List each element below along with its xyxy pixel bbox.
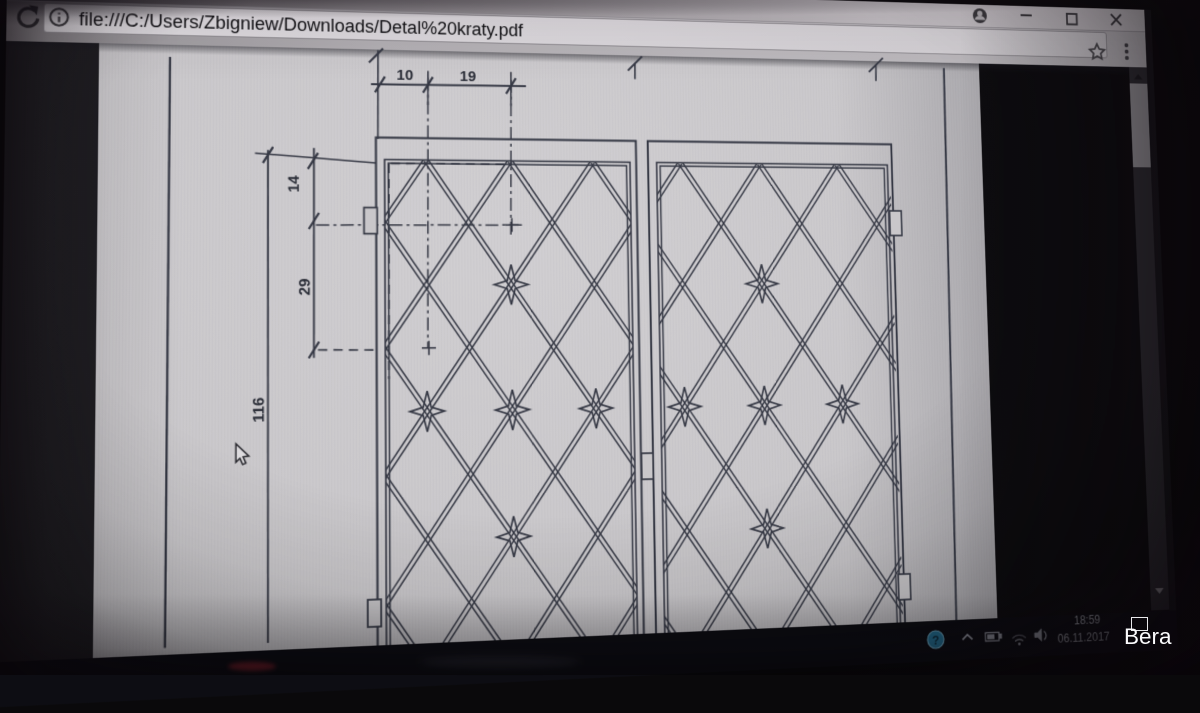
svg-text:19: 19 (460, 69, 477, 85)
svg-text:29: 29 (297, 278, 314, 295)
svg-text:116: 116 (251, 397, 268, 423)
svg-text:06.11.2017: 06.11.2017 (1057, 630, 1109, 645)
svg-text:14: 14 (286, 175, 303, 192)
svg-text:18:59: 18:59 (1074, 613, 1101, 627)
svg-text:10: 10 (397, 68, 414, 84)
svg-text:?: ? (932, 633, 940, 647)
